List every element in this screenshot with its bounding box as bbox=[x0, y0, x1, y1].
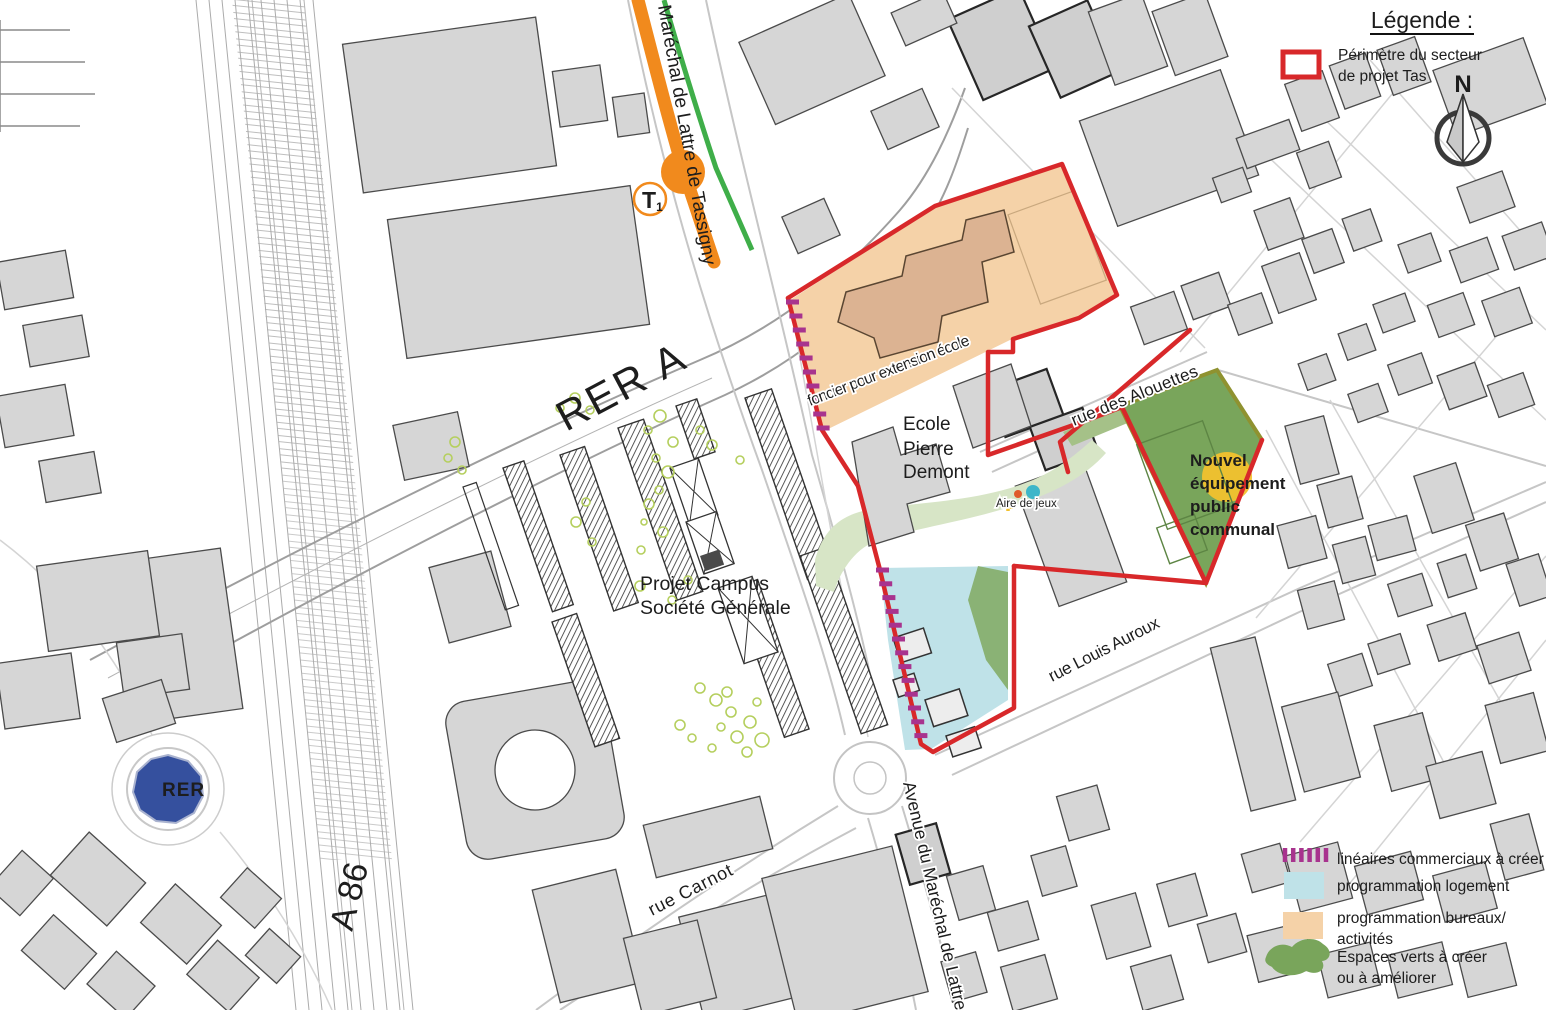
legend-logement-label: programmation logement bbox=[1337, 878, 1510, 895]
label-rer-a: RER A bbox=[548, 332, 695, 440]
label-aire-de-jeux: Aire de jeux bbox=[996, 498, 1057, 510]
railway-yard bbox=[0, 0, 413, 1010]
legend-bureaux-label-1: programmation bureaux/ bbox=[1337, 910, 1507, 927]
legend-verts-label-1: Espaces verts à créer bbox=[1337, 949, 1487, 966]
urban-plan-map: T1 RER RER A A 86 Maréchal de Lattre de … bbox=[0, 0, 1546, 1010]
label-campus-2: Société Générale bbox=[640, 597, 791, 619]
label-equipement-3: public bbox=[1190, 497, 1240, 516]
t1-badge-label: T1 bbox=[642, 187, 663, 214]
legend-bureaux-label-2: activités bbox=[1337, 931, 1393, 948]
label-campus-1: Projet Campus bbox=[640, 573, 769, 595]
legend-verts-label-2: ou à améliorer bbox=[1337, 970, 1436, 987]
label-ecole-2: Pierre bbox=[903, 439, 954, 460]
label-rue-louis-auroux: rue Louis Auroux bbox=[1045, 613, 1163, 686]
logement-swatch bbox=[1284, 872, 1324, 899]
perimeter-label-1: Périmètre du secteur bbox=[1338, 47, 1482, 64]
label-ecole-1: Ecole bbox=[903, 414, 951, 435]
label-equipement-2: équipement bbox=[1190, 474, 1286, 493]
label-marechal-top: Maréchal de Lattre de Tassigny bbox=[653, 3, 720, 267]
label-a86: A 86 bbox=[323, 859, 376, 934]
playground-dot-red bbox=[1014, 490, 1022, 498]
legend-commercial-label: linéaires commerciaux à créer bbox=[1337, 851, 1544, 868]
playground-dot-teal bbox=[1026, 485, 1040, 499]
label-equipement-1: Nouvel bbox=[1190, 451, 1247, 470]
bureaux-swatch bbox=[1283, 912, 1323, 939]
buildings-layer bbox=[0, 0, 1546, 1010]
map-canvas: T1 RER RER A A 86 Maréchal de Lattre de … bbox=[0, 0, 1546, 1010]
legend-title: Légende : bbox=[1371, 7, 1473, 33]
perimeter-label-2: de projet Tas bbox=[1338, 68, 1427, 85]
label-ecole-3: Demont bbox=[903, 462, 970, 483]
rer-marker-label: RER bbox=[162, 780, 205, 801]
label-equipement-4: communal bbox=[1190, 520, 1275, 539]
perimeter-swatch bbox=[1283, 52, 1319, 77]
